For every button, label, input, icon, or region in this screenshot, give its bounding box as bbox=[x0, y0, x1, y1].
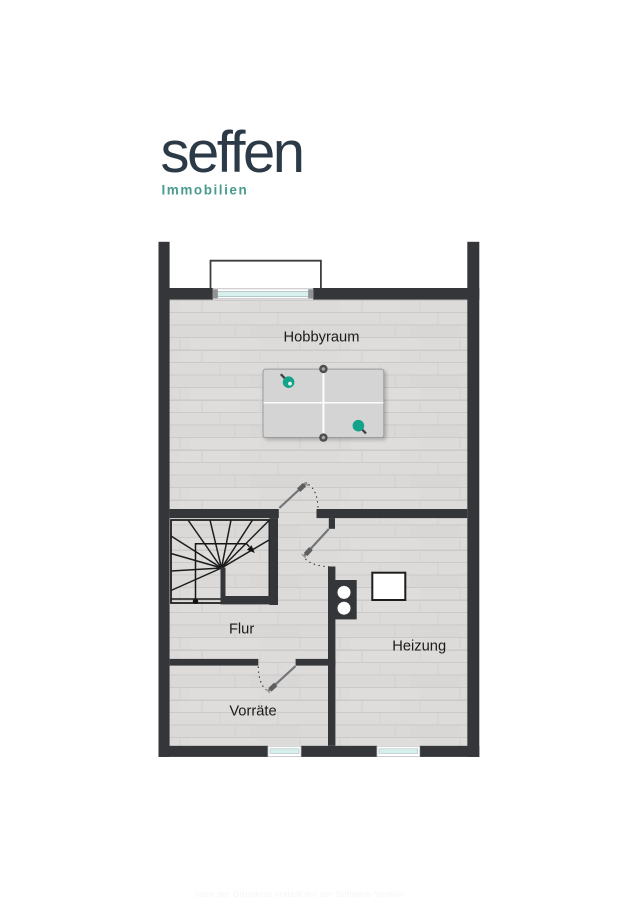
svg-text:Flur: Flur bbox=[229, 622, 254, 638]
svg-text:Hobbyraum: Hobbyraum bbox=[284, 329, 360, 345]
svg-text:nach der Grundriss erstellt mi: nach der Grundriss erstellt mit der Soft… bbox=[195, 890, 405, 899]
svg-text:Immobilien: Immobilien bbox=[162, 183, 249, 198]
svg-text:Vorräte: Vorräte bbox=[229, 704, 276, 720]
svg-text:seffen: seffen bbox=[161, 120, 303, 185]
svg-text:Heizung: Heizung bbox=[392, 639, 446, 655]
